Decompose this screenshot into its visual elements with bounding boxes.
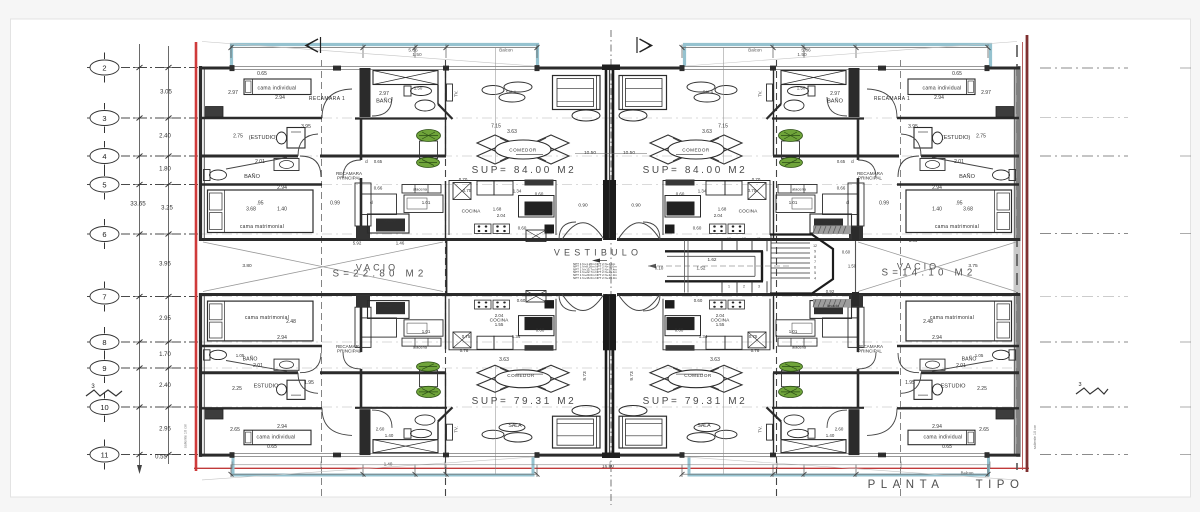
svg-text:alacena: alacena — [792, 187, 807, 192]
svg-text:2.48: 2.48 — [923, 319, 933, 325]
svg-text:BAÑO: BAÑO — [962, 356, 977, 363]
svg-text:TV.: TV. — [758, 426, 763, 432]
svg-text:0.66: 0.66 — [837, 186, 846, 191]
svg-text:0.65: 0.65 — [267, 444, 277, 450]
svg-text:0.65: 0.65 — [837, 159, 846, 164]
svg-text:PRINCIPAL: PRINCIPAL — [337, 348, 361, 353]
svg-text:2.01: 2.01 — [954, 159, 964, 165]
svg-text:cl: cl — [846, 200, 849, 205]
svg-text:2.94: 2.94 — [932, 335, 942, 341]
svg-text:33.65: 33.65 — [130, 201, 146, 208]
svg-text:0.78: 0.78 — [751, 348, 760, 353]
svg-text:cl: cl — [370, 200, 373, 205]
svg-text:alacena: alacena — [413, 345, 428, 350]
svg-text:7: 7 — [102, 292, 106, 301]
svg-text:2.48: 2.48 — [286, 319, 296, 325]
svg-text:0.78: 0.78 — [460, 348, 469, 353]
svg-text:cama matrimonial: cama matrimonial — [240, 224, 284, 230]
svg-text:11: 11 — [757, 237, 761, 241]
svg-text:0.90: 0.90 — [631, 202, 641, 208]
svg-text:0.75: 0.75 — [462, 334, 471, 339]
svg-text:2.95: 2.95 — [159, 316, 171, 322]
svg-text:SUP= 79.31 M2: SUP= 79.31 M2 — [472, 396, 577, 407]
svg-text:1.50: 1.50 — [797, 86, 806, 91]
svg-text:3: 3 — [102, 114, 106, 123]
svg-text:0.60: 0.60 — [694, 298, 703, 303]
svg-text:2.95: 2.95 — [159, 427, 171, 433]
svg-text:COCINA: COCINA — [462, 209, 481, 215]
svg-text:alacena: alacena — [792, 345, 807, 350]
svg-text:cl: cl — [365, 159, 368, 164]
svg-text:PLANTA: PLANTA — [868, 479, 945, 491]
svg-text:1.34: 1.34 — [513, 189, 522, 194]
svg-text:0.65: 0.65 — [952, 71, 962, 77]
svg-text:BAÑO: BAÑO — [827, 98, 844, 105]
svg-text:1.46: 1.46 — [396, 241, 405, 246]
svg-text:COCINA: COCINA — [739, 209, 758, 215]
svg-text:COMEDOR: COMEDOR — [509, 148, 537, 153]
svg-text:4: 4 — [814, 276, 816, 280]
svg-text:lavado: lavado — [823, 218, 836, 223]
svg-text:3.95: 3.95 — [908, 124, 918, 130]
svg-text:13: 13 — [727, 237, 731, 241]
svg-text:2.94: 2.94 — [277, 335, 287, 341]
svg-text:COMEDOR: COMEDOR — [684, 373, 712, 378]
svg-text:Balcon: Balcon — [748, 48, 762, 53]
svg-text:2.65: 2.65 — [230, 427, 240, 433]
svg-text:1.50: 1.50 — [414, 86, 423, 91]
svg-text:2.40: 2.40 — [159, 134, 171, 140]
svg-text:1.40: 1.40 — [932, 207, 942, 213]
svg-text:0.60: 0.60 — [536, 328, 545, 333]
svg-text:0.60: 0.60 — [517, 298, 526, 303]
svg-text:BAÑO: BAÑO — [244, 173, 261, 180]
svg-text:3.25: 3.25 — [161, 206, 173, 212]
svg-text:10.50: 10.50 — [584, 150, 596, 156]
svg-text:RECAMARA: RECAMARA — [857, 171, 884, 176]
svg-text:2.94: 2.94 — [277, 424, 287, 430]
svg-text:0.90: 0.90 — [578, 202, 588, 208]
svg-text:6: 6 — [814, 266, 816, 270]
svg-text:SALA: SALA — [506, 90, 517, 95]
svg-text:0.65: 0.65 — [942, 444, 952, 450]
svg-text:BAÑO: BAÑO — [959, 173, 976, 180]
svg-text:(ESTUDIO): (ESTUDIO) — [942, 135, 971, 141]
svg-text:2.01: 2.01 — [253, 363, 263, 369]
svg-text:2.94: 2.94 — [275, 95, 285, 101]
svg-text:0.60: 0.60 — [693, 226, 702, 231]
svg-text:.95: .95 — [257, 200, 264, 206]
svg-text:3.63: 3.63 — [710, 357, 720, 363]
svg-text:8: 8 — [102, 338, 106, 347]
svg-text:2.60: 2.60 — [835, 427, 844, 432]
svg-text:0.75: 0.75 — [749, 334, 758, 339]
svg-text:7.15: 7.15 — [491, 124, 501, 130]
svg-text:SALA: SALA — [703, 90, 714, 95]
svg-text:RECAMARA: RECAMARA — [336, 171, 363, 176]
svg-text:12: 12 — [813, 244, 817, 248]
svg-text:3.68: 3.68 — [246, 207, 256, 213]
svg-text:ESTUDIO: ESTUDIO — [254, 384, 280, 390]
svg-text:9.73: 9.73 — [629, 371, 635, 381]
svg-text:8: 8 — [814, 255, 816, 259]
svg-text:2.04: 2.04 — [497, 213, 506, 218]
svg-text:2.94: 2.94 — [934, 95, 944, 101]
svg-text:1.01: 1.01 — [422, 200, 431, 205]
svg-text:3.63: 3.63 — [499, 357, 509, 363]
svg-text:0.75: 0.75 — [748, 188, 757, 193]
svg-text:0.70: 0.70 — [752, 177, 761, 182]
svg-text:4: 4 — [102, 152, 106, 161]
svg-text:cama individual: cama individual — [923, 85, 962, 91]
svg-text:0.92: 0.92 — [826, 289, 835, 294]
svg-text:cama individual: cama individual — [257, 435, 296, 441]
svg-text:1.68: 1.68 — [718, 207, 727, 212]
svg-text:ESTUDIO: ESTUDIO — [941, 384, 967, 390]
svg-text:2.01: 2.01 — [956, 363, 966, 369]
svg-text:1.50: 1.50 — [848, 264, 857, 269]
svg-text:3.63: 3.63 — [702, 129, 712, 135]
svg-text:0.66: 0.66 — [374, 186, 383, 191]
svg-text:2: 2 — [102, 63, 106, 72]
svg-text:2.04: 2.04 — [716, 313, 725, 318]
svg-text:2: 2 — [743, 285, 745, 289]
svg-text:10.50: 10.50 — [623, 150, 635, 156]
svg-text:2.94: 2.94 — [932, 185, 942, 191]
svg-text:cama individual: cama individual — [924, 435, 963, 441]
svg-text:2.25: 2.25 — [977, 386, 987, 392]
svg-text:1.40: 1.40 — [384, 462, 393, 467]
svg-text:PRINCIPAL: PRINCIPAL — [337, 176, 361, 181]
svg-text:1.70: 1.70 — [159, 352, 171, 358]
svg-text:TIPO: TIPO — [976, 479, 1025, 491]
svg-text:1.52: 1.52 — [697, 266, 706, 271]
svg-text:1.01: 1.01 — [789, 200, 798, 205]
svg-text:SUP= 79.31 M2: SUP= 79.31 M2 — [643, 396, 748, 407]
svg-text:(ESTUDIO): (ESTUDIO) — [249, 135, 278, 141]
svg-text:0.10: 0.10 — [655, 266, 664, 271]
svg-text:SUP= 84.00 M2: SUP= 84.00 M2 — [472, 165, 577, 176]
svg-text:2.40: 2.40 — [159, 383, 171, 389]
svg-text:cama individual: cama individual — [258, 85, 297, 91]
svg-text:Balcon: Balcon — [961, 471, 974, 476]
svg-text:9: 9 — [102, 364, 106, 373]
svg-text:1.68: 1.68 — [493, 207, 502, 212]
svg-text:NPT 1 N+36.6m NPT 2 N+39.3m: NPT 1 N+36.6m NPT 2 N+39.3m — [573, 276, 617, 280]
svg-text:TV.: TV. — [758, 91, 763, 97]
svg-text:9.73: 9.73 — [582, 371, 588, 381]
svg-text:S=14.10 M2: S=14.10 M2 — [881, 268, 976, 279]
svg-text:1.34: 1.34 — [698, 189, 707, 194]
svg-text:2.25: 2.25 — [232, 386, 242, 392]
svg-text:lavado: lavado — [384, 218, 397, 223]
svg-text:5.92: 5.92 — [353, 241, 362, 246]
svg-text:7.15: 7.15 — [718, 124, 728, 130]
svg-text:BAÑO: BAÑO — [243, 356, 258, 363]
svg-text:saliente 10 cm: saliente 10 cm — [1033, 425, 1037, 449]
svg-text:2.94: 2.94 — [277, 185, 287, 191]
svg-text:COMEDOR: COMEDOR — [507, 373, 535, 378]
svg-text:COMEDOR: COMEDOR — [682, 148, 710, 153]
svg-text:1.40: 1.40 — [385, 433, 394, 438]
svg-text:3: 3 — [1078, 382, 1081, 388]
svg-text:RECAMARA 1: RECAMARA 1 — [309, 96, 345, 102]
svg-text:TV.: TV. — [454, 426, 459, 432]
svg-text:5.92: 5.92 — [862, 237, 871, 242]
svg-text:S=22.80 M2: S=22.80 M2 — [332, 269, 427, 280]
svg-text:1.95: 1.95 — [905, 380, 915, 386]
svg-text:0.55: 0.55 — [155, 455, 167, 461]
svg-text:cama matrimonial: cama matrimonial — [245, 315, 289, 321]
svg-text:0.65: 0.65 — [257, 71, 267, 77]
svg-text:0.65: 0.65 — [374, 159, 383, 164]
svg-text:10: 10 — [100, 403, 108, 412]
svg-text:3.80: 3.80 — [242, 263, 252, 269]
svg-text:5: 5 — [102, 180, 106, 189]
svg-text:6: 6 — [102, 230, 106, 239]
svg-text:0.99: 0.99 — [330, 200, 340, 206]
svg-text:saliente 10 cm: saliente 10 cm — [184, 424, 188, 448]
svg-text:PRINCIPAL: PRINCIPAL — [858, 348, 882, 353]
svg-text:2.97: 2.97 — [981, 90, 991, 96]
svg-text:2.75: 2.75 — [976, 134, 986, 140]
svg-text:.95: .95 — [956, 200, 963, 206]
svg-text:2.94: 2.94 — [932, 424, 942, 430]
svg-text:5.86: 5.86 — [408, 48, 418, 54]
svg-text:cl: cl — [851, 159, 854, 164]
svg-text:5.86: 5.86 — [801, 48, 811, 54]
svg-text:1.80: 1.80 — [159, 167, 171, 173]
svg-text:VESTIBULO: VESTIBULO — [554, 248, 642, 258]
svg-text:0.60: 0.60 — [518, 226, 527, 231]
svg-text:16.00: 16.00 — [602, 464, 614, 470]
svg-text:3.75: 3.75 — [968, 263, 978, 269]
svg-text:2.75: 2.75 — [233, 134, 243, 140]
svg-text:3.63: 3.63 — [507, 129, 517, 135]
svg-text:cama matrimonial: cama matrimonial — [930, 315, 974, 321]
svg-text:3.66: 3.66 — [909, 238, 918, 243]
svg-text:3: 3 — [758, 285, 760, 289]
svg-text:1.34: 1.34 — [512, 334, 521, 339]
svg-text:1.55: 1.55 — [495, 322, 504, 327]
svg-text:1.01: 1.01 — [422, 329, 431, 334]
svg-text:1: 1 — [728, 285, 730, 289]
svg-text:TV.: TV. — [454, 91, 459, 97]
svg-text:7: 7 — [814, 260, 816, 264]
svg-text:cama matrimonial: cama matrimonial — [935, 224, 979, 230]
svg-text:2.60: 2.60 — [376, 427, 385, 432]
svg-text:1.40: 1.40 — [277, 207, 287, 213]
svg-text:0.60: 0.60 — [675, 328, 684, 333]
svg-text:12: 12 — [742, 237, 746, 241]
svg-text:lavado: lavado — [827, 303, 840, 308]
svg-text:3.95: 3.95 — [159, 262, 171, 268]
svg-text:0.70: 0.70 — [459, 177, 468, 182]
svg-text:1.50: 1.50 — [797, 52, 807, 58]
svg-text:Balcon: Balcon — [499, 48, 513, 53]
svg-text:lavado: lavado — [380, 303, 393, 308]
svg-text:1.40: 1.40 — [826, 433, 835, 438]
svg-text:2.97: 2.97 — [830, 91, 840, 97]
svg-text:RECAMARA 1: RECAMARA 1 — [874, 96, 910, 102]
svg-text:5: 5 — [814, 271, 816, 275]
svg-text:PRINCIPAL: PRINCIPAL — [858, 176, 882, 181]
svg-text:1.95: 1.95 — [304, 380, 314, 386]
svg-text:2.01: 2.01 — [255, 159, 265, 165]
svg-text:1.62: 1.62 — [708, 257, 717, 262]
svg-text:0.99: 0.99 — [879, 200, 889, 206]
svg-text:0.60: 0.60 — [535, 191, 544, 196]
svg-text:2.97: 2.97 — [379, 91, 389, 97]
svg-text:2.65: 2.65 — [979, 427, 989, 433]
svg-text:1.50: 1.50 — [412, 52, 422, 58]
svg-text:0.60: 0.60 — [676, 191, 685, 196]
svg-text:9: 9 — [814, 249, 816, 253]
svg-text:2.04: 2.04 — [714, 213, 723, 218]
svg-text:3.95: 3.95 — [301, 124, 311, 130]
svg-text:1.55: 1.55 — [716, 322, 725, 327]
svg-text:1.34: 1.34 — [699, 334, 708, 339]
svg-text:BAÑO: BAÑO — [376, 98, 393, 105]
svg-text:alacena: alacena — [413, 187, 428, 192]
svg-text:SALA: SALA — [697, 423, 711, 429]
svg-text:11: 11 — [101, 450, 109, 459]
svg-text:0.60: 0.60 — [842, 250, 851, 255]
svg-text:3.05: 3.05 — [160, 90, 172, 96]
svg-text:0.75: 0.75 — [463, 188, 472, 193]
svg-text:2.04: 2.04 — [495, 313, 504, 318]
svg-text:SALA: SALA — [508, 423, 522, 429]
svg-text:SUP= 84.00 M2: SUP= 84.00 M2 — [643, 165, 748, 176]
svg-text:3.68: 3.68 — [963, 207, 973, 213]
svg-text:1.01: 1.01 — [789, 329, 798, 334]
svg-text:2.97: 2.97 — [228, 90, 238, 96]
